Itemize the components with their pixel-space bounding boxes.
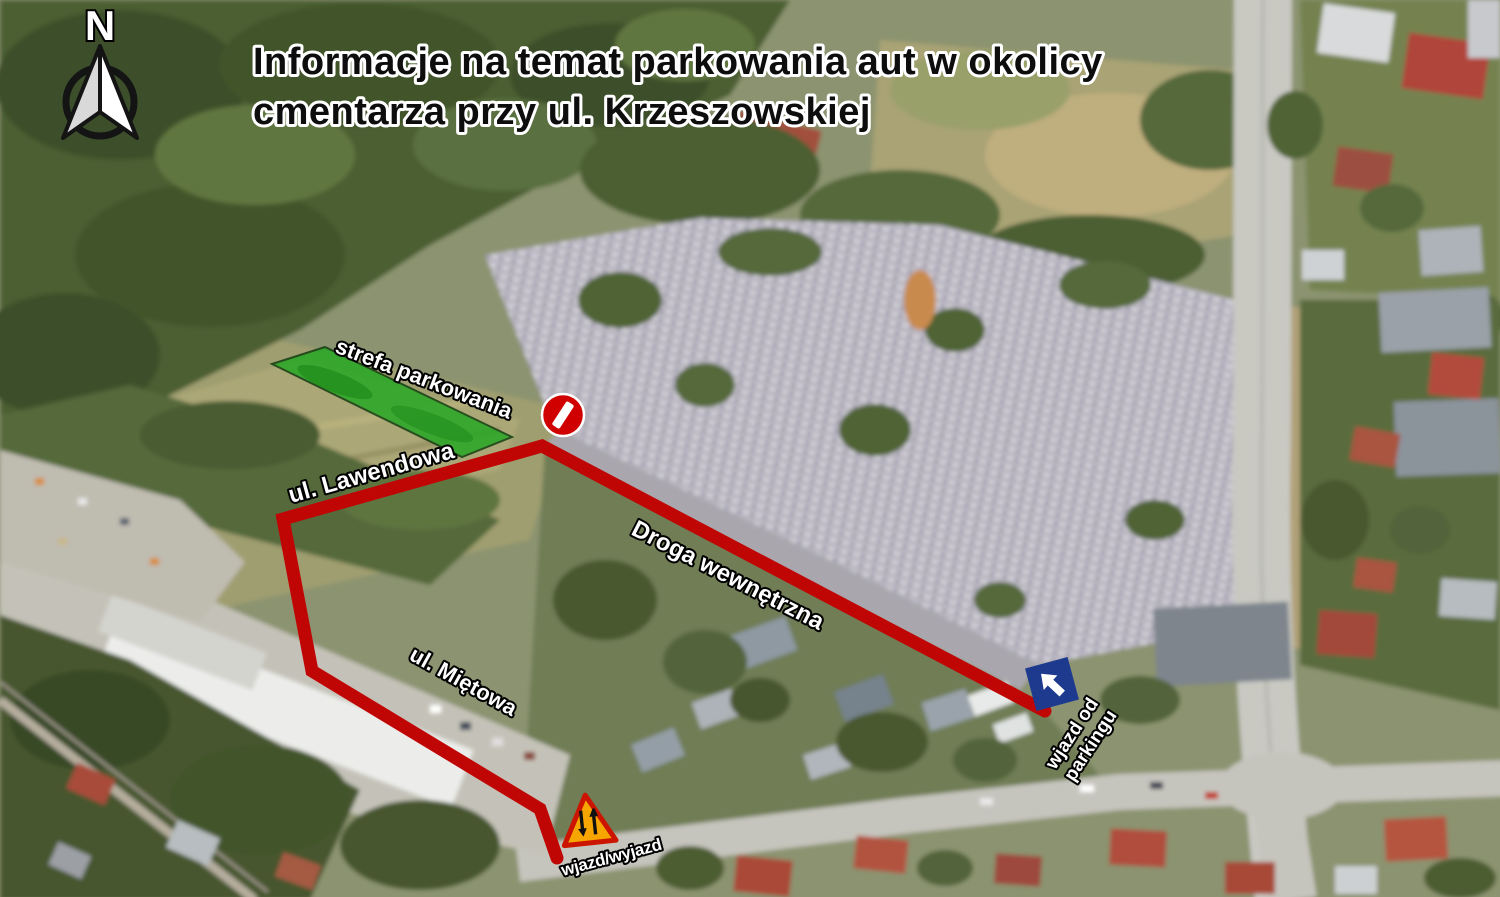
label-street-mietowa: ul. Miętowa (406, 642, 522, 722)
map-title-line1: Informacje na temat parkowania aut w oko… (253, 41, 1103, 83)
annotation-overlay: N strefa parkowania ul. Lawendowa Droga … (0, 0, 1500, 897)
map-title: Informacje na temat parkowania aut w oko… (253, 41, 1103, 133)
no-entry-sign-icon (542, 394, 584, 436)
map-title-line2: cmentarza przy ul. Krzeszowskiej (253, 91, 871, 133)
two-way-warning-sign-icon (559, 792, 616, 845)
route-line (283, 446, 1045, 858)
compass-north-label: N (85, 2, 115, 49)
north-compass: N (63, 2, 137, 138)
label-entry-from-parking: wjazd od parkingu (1041, 694, 1121, 786)
parking-info-map: N strefa parkowania ul. Lawendowa Droga … (0, 0, 1500, 897)
